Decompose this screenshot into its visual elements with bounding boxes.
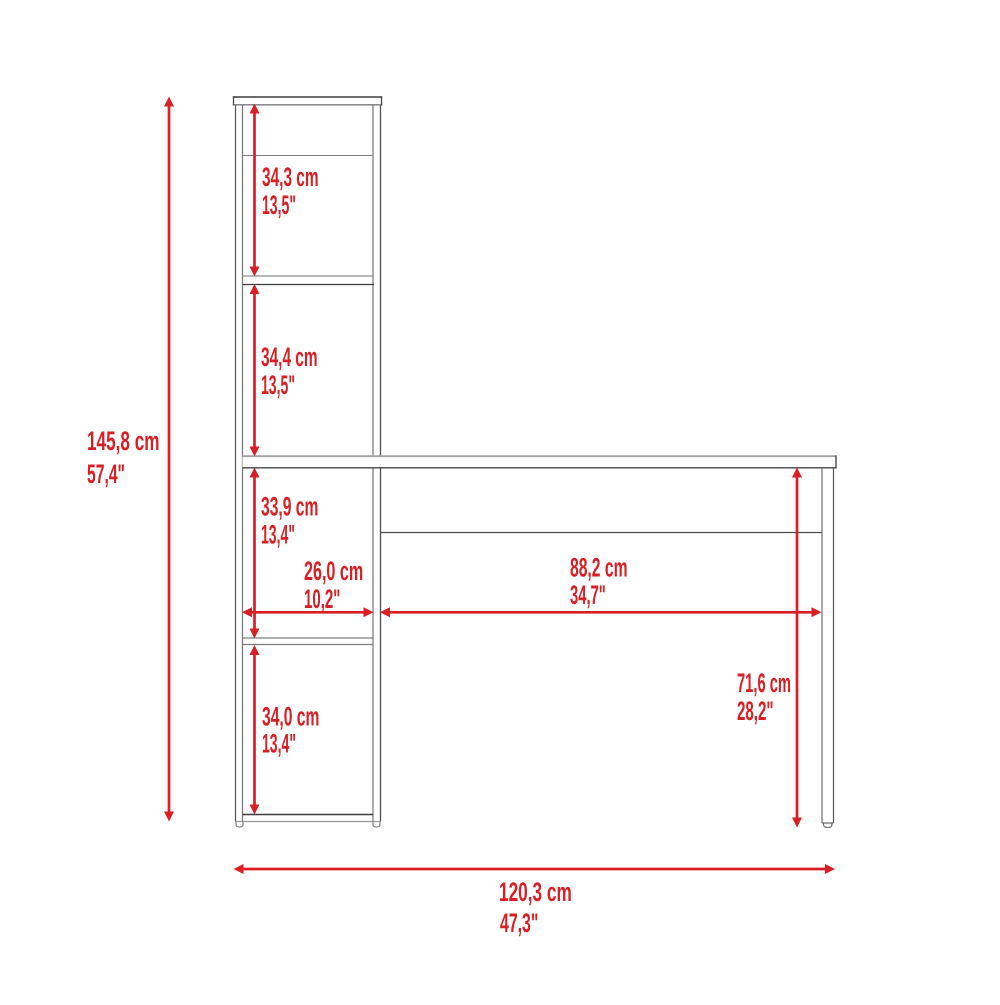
svg-text:28,2": 28,2" — [737, 696, 774, 726]
svg-text:10,2": 10,2" — [304, 584, 340, 614]
svg-text:13,5": 13,5" — [262, 190, 296, 220]
svg-text:13,4": 13,4" — [262, 729, 296, 759]
svg-text:47,3": 47,3" — [500, 908, 538, 938]
svg-text:34,7": 34,7" — [570, 580, 606, 610]
svg-text:33,9 cm: 33,9 cm — [261, 492, 318, 522]
svg-text:57,4": 57,4" — [87, 459, 125, 489]
svg-text:88,2 cm: 88,2 cm — [570, 553, 628, 583]
svg-text:71,6 cm: 71,6 cm — [737, 668, 791, 698]
svg-text:34,3 cm: 34,3 cm — [262, 162, 319, 192]
svg-text:120,3 cm: 120,3 cm — [499, 877, 572, 907]
svg-text:34,4 cm: 34,4 cm — [261, 342, 318, 372]
svg-text:26,0 cm: 26,0 cm — [304, 556, 363, 586]
svg-text:13,5": 13,5" — [261, 370, 295, 400]
svg-text:145,8 cm: 145,8 cm — [87, 426, 160, 456]
svg-text:13,4": 13,4" — [261, 520, 295, 550]
svg-text:34,0 cm: 34,0 cm — [262, 702, 319, 732]
